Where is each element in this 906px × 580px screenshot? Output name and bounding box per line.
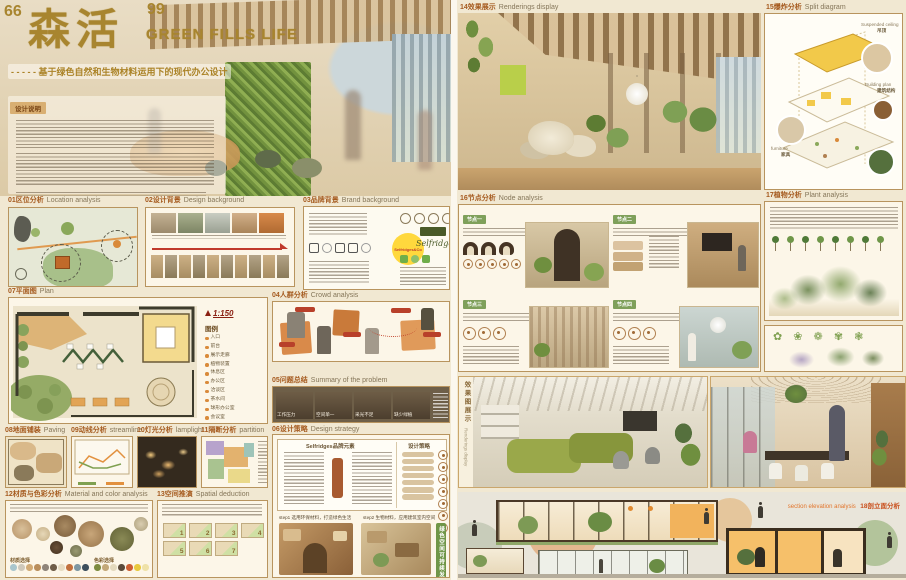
section-en: partition — [239, 427, 264, 434]
color-dot — [10, 564, 17, 571]
reference-photo — [178, 213, 203, 233]
app-icon — [348, 243, 358, 253]
stat-circle — [400, 213, 411, 224]
person-figure — [688, 333, 696, 361]
strategy-icon — [438, 474, 448, 484]
color-dot-row — [94, 564, 149, 571]
step2-caption: step2 生物材料，应用建筑室内空间 — [363, 515, 435, 521]
blurred-figure — [418, 110, 432, 170]
strategy-pill-column — [402, 450, 434, 501]
material-swatch-circle — [78, 521, 104, 547]
zone-block — [228, 469, 250, 483]
node-tag: 节点四 — [613, 300, 636, 309]
building-section-glass — [538, 550, 688, 576]
section-cn: 节点分析 — [468, 195, 496, 202]
brand-text-lines — [309, 213, 367, 235]
section-en: Location analysis — [47, 197, 101, 204]
plant-blob — [584, 263, 604, 281]
crowd-label-tag — [423, 332, 441, 337]
strategy-pill — [402, 494, 434, 500]
section-num: 12 — [5, 491, 13, 498]
paragraph-lines — [16, 192, 206, 196]
color-dot — [134, 564, 141, 571]
material-color-panel: 材质选择 色彩选择 — [5, 500, 153, 578]
building-section-small — [466, 548, 524, 574]
route-legend-orange — [106, 482, 124, 485]
section-en: Brand background — [342, 197, 399, 204]
streamline-routes — [73, 438, 131, 478]
color-dot — [66, 564, 73, 571]
list-item: 休息区 — [205, 369, 265, 378]
section-num: 14 — [460, 4, 468, 11]
section-cn: 品牌背景 — [311, 197, 339, 204]
node-icon — [475, 259, 485, 269]
node-icon — [493, 327, 506, 340]
strategy-icon — [438, 487, 448, 497]
color-dot — [50, 564, 57, 571]
material-chip — [395, 543, 419, 557]
route-legend-green — [78, 482, 96, 485]
compass-icon — [15, 268, 27, 280]
arch-shape — [481, 242, 496, 255]
color-dot — [126, 564, 133, 571]
paving-plan — [5, 436, 67, 488]
section-cn: 效果展示 — [468, 4, 496, 11]
pouf-seat — [255, 150, 281, 168]
color-dot — [94, 564, 101, 571]
green-node — [113, 240, 121, 248]
wood-floor — [458, 168, 761, 190]
step1-caption: step1 选用环保材料，打造绿色生活 — [279, 515, 351, 521]
section-cn: 问题总结 — [280, 377, 308, 384]
caption-lines — [152, 235, 286, 239]
list-item: 3 — [215, 523, 238, 538]
tree-icon — [846, 236, 854, 253]
tree-icon — [786, 236, 794, 253]
node-block-1: 节点一 — [463, 208, 609, 288]
pouf-seat — [292, 158, 322, 178]
indoor-plants — [578, 109, 638, 157]
bay-divider — [775, 531, 778, 573]
plan-legend: 1:150 图例 入口前台展示走廊植物装置休息区办公区洽谈区茶水间球形办公室会议… — [205, 303, 265, 424]
main-rendering — [458, 13, 761, 190]
list-item: 茶水间 — [205, 396, 265, 405]
green-node — [61, 222, 74, 235]
color-dot — [142, 564, 149, 571]
section-en: Material and color analysis — [65, 491, 148, 498]
section-num: 04 — [272, 292, 280, 299]
section-header-17: 17植物分析Plant analysis — [766, 192, 848, 199]
list-item: 前台 — [205, 343, 265, 352]
color-dot — [18, 564, 25, 571]
material-text-lines — [10, 504, 148, 514]
office-chair — [645, 447, 660, 464]
node-block-2: 节点二 — [613, 208, 759, 288]
reference-photo — [205, 213, 230, 233]
white-chair — [821, 463, 834, 479]
strategy-pill — [402, 487, 434, 493]
list-item: 球形办公室 — [205, 405, 265, 414]
app-icon-row — [309, 243, 371, 253]
north-arrow-icon — [205, 310, 211, 316]
pedestrian-figure — [472, 524, 477, 536]
window-trees — [654, 91, 724, 143]
person-photo — [421, 308, 434, 330]
office-photo — [473, 377, 707, 487]
material-picks: 材质选择 — [10, 557, 89, 571]
shelf-unit — [481, 405, 519, 439]
strategy-pill — [402, 480, 434, 486]
elevation-label-en: section elevation analysis — [788, 504, 856, 510]
problem-photo-row: 工作压力空间单一采光不足缺少绿植 — [276, 392, 432, 419]
pendant-dot — [648, 506, 653, 511]
section-header-16: 16节点分析Node analysis — [460, 195, 543, 202]
social-icon-row — [400, 255, 430, 263]
material-chip — [333, 531, 347, 541]
person-figure — [599, 559, 603, 573]
floor-plan-drawing — [11, 300, 201, 421]
strategy-pill — [402, 473, 434, 479]
person-photo — [287, 312, 305, 338]
list-item: 展示走廊 — [205, 352, 265, 361]
strategy-flowchart: Selfridges品牌元素 设计策略 — [277, 439, 447, 511]
design-description: 设计说明 — [8, 96, 226, 194]
color-dot — [26, 564, 33, 571]
section-cn: 地面铺装 — [13, 427, 41, 434]
title-chinese: 森活 — [28, 0, 124, 57]
step1-collage — [279, 523, 353, 575]
section-num: 03 — [303, 197, 311, 204]
node-icon — [628, 327, 641, 340]
split-diagram-panel: Suspended ceiling 吊顶 Building plan 建筑结构 … — [764, 13, 903, 190]
uk-map-silhouette — [14, 216, 31, 242]
legend-title: 图例 — [205, 323, 265, 333]
node-icon — [463, 259, 473, 269]
zone-block — [208, 459, 224, 479]
color-label: 色彩选择 — [94, 557, 149, 564]
list-item: 6 — [189, 541, 212, 556]
pendant-dot — [628, 506, 633, 511]
list-item: 洽谈区 — [205, 387, 265, 396]
color-dot — [82, 564, 89, 571]
crowd-label-tag — [391, 308, 411, 313]
strategy-pill — [402, 459, 434, 465]
section-header-07: 07平面图Plan — [8, 288, 54, 295]
list-item: 采光不足 — [354, 392, 391, 419]
design-strategy-panel: Selfridges品牌元素 设计策略 step1 选用环保材料，打造绿色生活 … — [272, 434, 450, 578]
node-text-lines — [613, 346, 669, 366]
section-cn: 设计策略 — [280, 426, 308, 433]
spatial-deduction-panel: 1234567 — [157, 500, 268, 578]
plant-text-lines — [770, 207, 898, 229]
section-cn: 爆炸分析 — [774, 4, 802, 11]
social-icon — [400, 255, 408, 263]
plant-palette-panel: ✿ ❀ ❁ ✾ ❃ — [764, 325, 903, 372]
material-swatch — [613, 252, 643, 261]
vertical-caption: 效果图展示 Renderings display — [459, 377, 473, 487]
seated-figure — [755, 547, 765, 567]
material-swatch-circle — [70, 545, 82, 557]
reference-photo — [259, 213, 284, 233]
history-photo — [179, 255, 191, 278]
split-label-furniture-en: furniture — [771, 146, 788, 151]
plant-glyph-icons: ✿ ❀ ❁ ✾ ❃ — [773, 330, 867, 343]
watercolor-plants — [769, 258, 899, 316]
social-icon — [422, 255, 430, 263]
node-render-photo — [687, 222, 759, 288]
list-item: 4 — [241, 523, 264, 538]
strategy-pill — [402, 452, 434, 458]
node-render-photo — [529, 306, 609, 368]
list-item: 植物装置 — [205, 361, 265, 370]
deduction-text-lines — [162, 504, 262, 516]
section-en: Plant analysis — [805, 192, 848, 199]
timeline-line — [152, 248, 282, 250]
split-label-furniture-cn: 家具 — [781, 151, 791, 158]
tree-icon — [876, 236, 884, 253]
node-icon — [487, 259, 497, 269]
section-num: 09 — [71, 427, 79, 434]
plant-blob — [373, 553, 389, 567]
list-item: 2 — [189, 523, 212, 538]
design-poster: 66 森活 99 GREEN FILLS LIFE - - - - - 基于绿色… — [0, 0, 906, 580]
list-item: 7 — [215, 541, 238, 556]
seated-person — [743, 431, 757, 453]
section-en: Paving — [44, 427, 65, 434]
color-dot — [74, 564, 81, 571]
node-icon — [613, 327, 626, 340]
section-cn: 灯光分析 — [145, 427, 173, 434]
section-cn: 区位分析 — [16, 197, 44, 204]
material-swatch-circle — [50, 541, 63, 554]
split-label-ceiling-en: Suspended ceiling — [861, 22, 899, 27]
material-label: 材质选择 — [10, 557, 89, 564]
plan-outline — [8, 439, 64, 485]
section-elevation-strip: section elevation analysis 18剖立面分析 — [458, 492, 906, 578]
flowchart-right-title: 设计策略 — [408, 442, 430, 450]
section-header-11: 11隔断分析partition — [201, 427, 264, 434]
split-label-plan-cn: 建筑结构 — [876, 87, 896, 94]
node-icon — [643, 327, 656, 340]
section-header-09: 09动线分析streamline — [71, 427, 142, 434]
flowchart-center-node — [332, 458, 343, 498]
arch-shape — [499, 242, 514, 255]
list-item: 工作压力 — [276, 392, 313, 419]
subtitle-dashes: - - - - - — [11, 67, 36, 77]
stat-circle-row — [400, 213, 450, 224]
material-chip — [283, 529, 301, 541]
node-icon — [463, 327, 476, 340]
section-header-06: 06设计策略Design strategy — [272, 426, 359, 433]
sphere-lamp — [710, 317, 726, 333]
meeting-photo — [711, 377, 905, 487]
section-en: Crowd analysis — [311, 292, 358, 299]
plant-blob — [518, 516, 538, 534]
green-node — [31, 228, 40, 237]
strategy-icon — [438, 511, 448, 521]
material-dot-row — [10, 564, 89, 571]
zone-block — [244, 443, 254, 457]
reference-photo — [232, 213, 257, 233]
node-text-lines — [463, 346, 519, 366]
plan-scale: 1:150 — [213, 309, 233, 318]
plant-blob — [732, 341, 752, 359]
streamline-plan — [71, 436, 133, 488]
node-icon — [511, 259, 521, 269]
vertical-caption-cn: 效果图展示 — [461, 381, 471, 424]
material-swatch-circle — [54, 515, 76, 537]
section-cn: 植物分析 — [774, 192, 802, 199]
app-icon — [335, 243, 345, 253]
grass-strip — [496, 542, 718, 545]
section-header-14: 14效果展示Renderings display — [460, 4, 558, 11]
vertical-caption-en: Renderings display — [464, 428, 469, 466]
elevation-label: section elevation analysis 18剖立面分析 — [788, 495, 900, 513]
arch-motif — [303, 543, 327, 573]
list-item: 空间单一 — [315, 392, 352, 419]
material-chip — [367, 531, 387, 543]
history-photo — [277, 255, 289, 278]
material-swatch-circle — [12, 519, 32, 539]
exploded-axonometric: Suspended ceiling 吊顶 Building plan 建筑结构 … — [765, 14, 903, 190]
history-photo — [165, 255, 177, 278]
color-dot — [118, 564, 125, 571]
strategy-icon — [438, 462, 448, 472]
rendering-meeting-room — [710, 376, 906, 488]
plant-blob — [649, 559, 665, 573]
plant-blob — [534, 343, 550, 357]
history-photo — [151, 255, 163, 278]
tree-icon — [771, 236, 779, 253]
split-label-plan-en: Building plan — [865, 82, 892, 87]
brand-script-logo: Selfridges — [416, 239, 450, 248]
node-tag: 节点一 — [463, 215, 486, 224]
plant-blob — [869, 427, 895, 467]
tree-icon — [816, 236, 824, 253]
list-item: 缺少绿植 — [393, 392, 430, 419]
title-block: 66 森活 99 GREEN FILLS LIFE — [4, 0, 324, 62]
brand-text-lines — [309, 261, 369, 285]
hanging-plant — [785, 385, 807, 403]
zone-block — [206, 441, 224, 455]
section-header-03: 03品牌背景Brand background — [303, 197, 399, 204]
color-picks: 色彩选择 — [94, 557, 149, 571]
node-block-3: 节点三 — [463, 293, 609, 369]
list-item: 入口 — [205, 334, 265, 343]
deduction-steps: 1234567 — [161, 521, 265, 557]
plant-blob — [534, 257, 552, 273]
color-dot — [102, 564, 109, 571]
poster-subtitle: - - - - - 基于绿色自然和生物材料运用下的现代办公设计 — [8, 64, 231, 79]
list-item: 5 — [163, 541, 186, 556]
design-background-panel — [145, 207, 295, 287]
tree-icon — [861, 236, 869, 253]
tv-screen — [623, 411, 657, 431]
section-en: Node analysis — [499, 195, 543, 202]
history-photo — [249, 255, 261, 278]
flowchart-left-title: Selfridges品牌元素 — [306, 442, 355, 450]
site-marker — [55, 256, 70, 269]
section-cn: 设计背景 — [153, 197, 181, 204]
seated-figure — [833, 549, 842, 567]
tv-screen — [702, 233, 732, 251]
tree-icon — [801, 236, 809, 253]
zone-legend-lines — [258, 441, 267, 483]
section-num: 08 — [5, 427, 13, 434]
white-chair — [795, 465, 808, 481]
crowd-label-tag — [343, 332, 361, 337]
subtitle-text: 基于绿色自然和生物材料运用下的现代办公设计 — [39, 67, 228, 77]
node-icon — [478, 327, 491, 340]
lighting-plan — [137, 436, 197, 488]
stat-circle — [414, 213, 425, 224]
section-num: 17 — [766, 192, 774, 199]
material-swatch-circle — [36, 527, 50, 541]
plant-blob — [588, 512, 612, 532]
section-cn: 空间推演 — [165, 491, 193, 498]
section-num: 05 — [272, 377, 280, 384]
flowchart-divider — [396, 442, 397, 508]
list-item: 出口 — [205, 423, 265, 424]
node-block-4: 节点四 — [613, 293, 759, 369]
history-photo — [221, 255, 233, 278]
section-en: Summary of the problem — [311, 377, 388, 384]
crowd-label-tag — [279, 342, 295, 347]
paragraph-lines — [16, 120, 214, 148]
section-num: 15 — [766, 4, 774, 11]
section-en: lamplight — [176, 427, 204, 434]
section-en: Design background — [184, 197, 244, 204]
list-item: 会议室 — [205, 414, 265, 423]
brand-text-lines — [400, 267, 446, 285]
dotted-path — [369, 318, 417, 337]
lime-accent-wall — [500, 65, 526, 95]
crowd-analysis-panel — [272, 301, 450, 362]
section-header-05: 05问题总结Summary of the problem — [272, 377, 387, 384]
watercolor-plants-small — [769, 344, 899, 370]
section-en: Design strategy — [311, 426, 360, 433]
node-tag: 节点三 — [463, 300, 486, 309]
section-en: Split diagram — [805, 4, 846, 11]
section-header-08: 08地面铺装Paving — [5, 427, 65, 434]
section-cn: 隔断分析 — [208, 427, 236, 434]
flowchart-lines — [284, 452, 324, 504]
sustainability-tag-text: 绿色空间可持续发展 — [436, 523, 446, 578]
color-dot — [58, 564, 65, 571]
pedestrian-figure — [704, 512, 709, 524]
swatch-note-lines — [649, 236, 679, 270]
rendering-office: 效果图展示 Renderings display — [458, 376, 708, 488]
ground-line — [458, 574, 906, 578]
section-header-01: 01区位分析Location analysis — [8, 197, 101, 204]
panel-gutter — [451, 0, 457, 580]
crowd-label-tag — [295, 307, 315, 312]
hanging-plants — [462, 17, 496, 77]
material-swatch-circle — [134, 517, 148, 531]
hero-collage: 66 森活 99 GREEN FILLS LIFE - - - - - 基于绿色… — [0, 0, 453, 196]
history-photo — [263, 255, 275, 278]
boulder-sofa — [528, 121, 574, 155]
problem-note-lines — [433, 393, 448, 418]
material-swatch-circle — [110, 527, 134, 551]
history-photo — [207, 255, 219, 278]
section-num: 07 — [8, 288, 16, 295]
reference-photo-row — [150, 212, 285, 234]
plant-blob — [669, 417, 705, 471]
section-num: 01 — [8, 197, 16, 204]
section-header-04: 04人群分析Crowd analysis — [272, 292, 358, 299]
section-header-12: 12材质与色彩分析Material and color analysis — [5, 491, 148, 498]
